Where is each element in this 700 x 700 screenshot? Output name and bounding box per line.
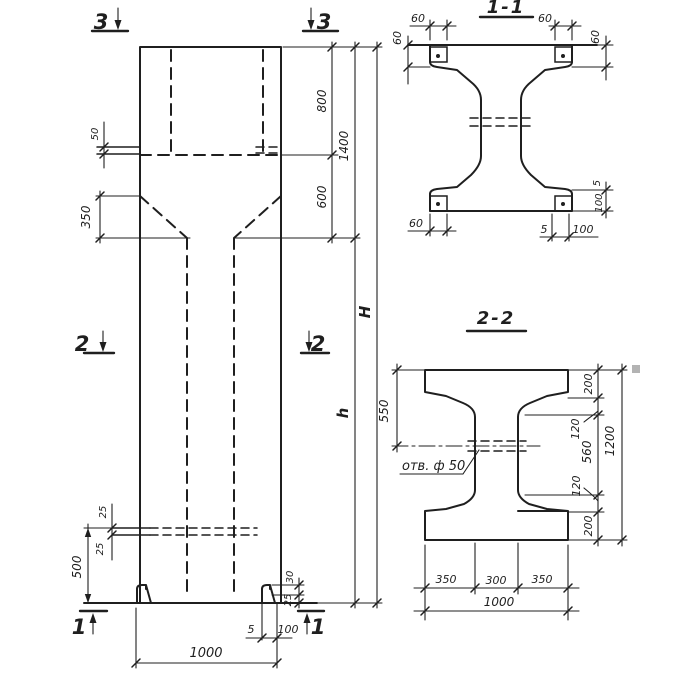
hole-label: отв. ф 50 xyxy=(402,459,465,474)
dim-60-right: 60 xyxy=(589,30,602,44)
column-outline xyxy=(84,47,317,603)
dim-h: h xyxy=(334,408,352,419)
dim-120-lower: 120 xyxy=(570,476,583,497)
section-mark-1-right: 1 xyxy=(311,615,326,639)
dim-5-side: 5 xyxy=(592,180,603,186)
dim-60-left: 60 xyxy=(391,31,404,45)
dim-60-top-right: 60 xyxy=(538,12,552,25)
dim-60-bottom-left: 60 xyxy=(409,217,423,230)
dim-1200: 1200 xyxy=(603,425,617,456)
section-1-1-dim-lines xyxy=(408,20,613,241)
dim-1400: 1400 xyxy=(337,130,351,161)
dim-600: 600 xyxy=(315,185,329,208)
dim-30-foot: 30 xyxy=(285,571,296,584)
section-mark-3-right: 3 xyxy=(317,10,332,34)
dim-550: 550 xyxy=(377,399,391,422)
dim-800: 800 xyxy=(315,89,329,112)
section-mark-bars xyxy=(80,31,338,611)
anchor-dot-br xyxy=(561,202,565,206)
section-mark-2-left: 2 xyxy=(75,332,90,356)
dim-100-bottom: 100 xyxy=(573,223,594,236)
section-1-1-outline xyxy=(408,45,597,211)
dim-200-bottom: 200 xyxy=(582,516,595,537)
anchor-dot-bl xyxy=(436,202,440,206)
dim-25-lower: 25 xyxy=(95,543,106,556)
section-1-1-title: 1-1 xyxy=(487,0,526,18)
elevation-view: 3 3 2 2 1 1 50 350 800 600 1400 h H 25 2… xyxy=(70,8,382,668)
section-2-2-dim-lines xyxy=(392,364,627,620)
section-mark-3-left: 3 xyxy=(94,10,109,34)
technical-drawing: 3 3 2 2 1 1 50 350 800 600 1400 h H 25 2… xyxy=(0,0,700,700)
section-2-2-outline xyxy=(425,370,568,540)
anchor-dot-tr xyxy=(561,54,565,58)
anchor-dot-tl xyxy=(436,54,440,58)
dim-1000-section: 1000 xyxy=(484,595,515,609)
web-hole-hidden xyxy=(470,118,532,126)
section-mark-stems xyxy=(93,8,311,634)
drawing-sheet: 3 3 2 2 1 1 50 350 800 600 1400 h H 25 2… xyxy=(0,0,700,700)
dim-1000-elevation: 1000 xyxy=(189,646,222,661)
embed-plate-lines xyxy=(97,147,150,535)
section-1-1-view: 1-1 60 60 60 60 60 5 100 5 100 xyxy=(391,0,613,241)
dim-60-top-left: 60 xyxy=(411,12,425,25)
dim-200-top: 200 xyxy=(582,374,595,395)
dim-5-bottom: 5 xyxy=(541,223,548,236)
dim-100-base: 100 xyxy=(278,623,299,636)
dim-5-base: 5 xyxy=(248,623,255,636)
dim-100-side: 100 xyxy=(594,193,605,212)
dim-25-upper: 25 xyxy=(98,506,109,519)
hidden-lines xyxy=(140,50,281,597)
scan-artifact xyxy=(632,365,640,373)
dim-350: 350 xyxy=(79,205,93,228)
section-mark-2-right: 2 xyxy=(311,332,326,356)
dim-H: H xyxy=(356,305,374,318)
dim-300: 300 xyxy=(486,574,507,587)
dim-350-right: 350 xyxy=(532,573,553,586)
dim-120-upper: 120 xyxy=(569,419,582,440)
dim-500: 500 xyxy=(70,555,84,578)
dim-350-left: 350 xyxy=(436,573,457,586)
dim-50: 50 xyxy=(90,128,101,141)
section-mark-1-left: 1 xyxy=(72,615,87,639)
embed-plates xyxy=(430,47,572,211)
dim-25-foot: 25 xyxy=(283,594,294,607)
section-2-2-view: 2-2 550 200 120 560 120 200 1200 отв. ф … xyxy=(377,308,640,620)
section-2-2-ticks xyxy=(393,366,626,615)
dim-560: 560 xyxy=(580,440,594,463)
hidden-lines-small xyxy=(150,147,281,535)
section-2-2-title: 2-2 xyxy=(477,308,516,329)
section-1-1-ticks xyxy=(404,22,610,241)
